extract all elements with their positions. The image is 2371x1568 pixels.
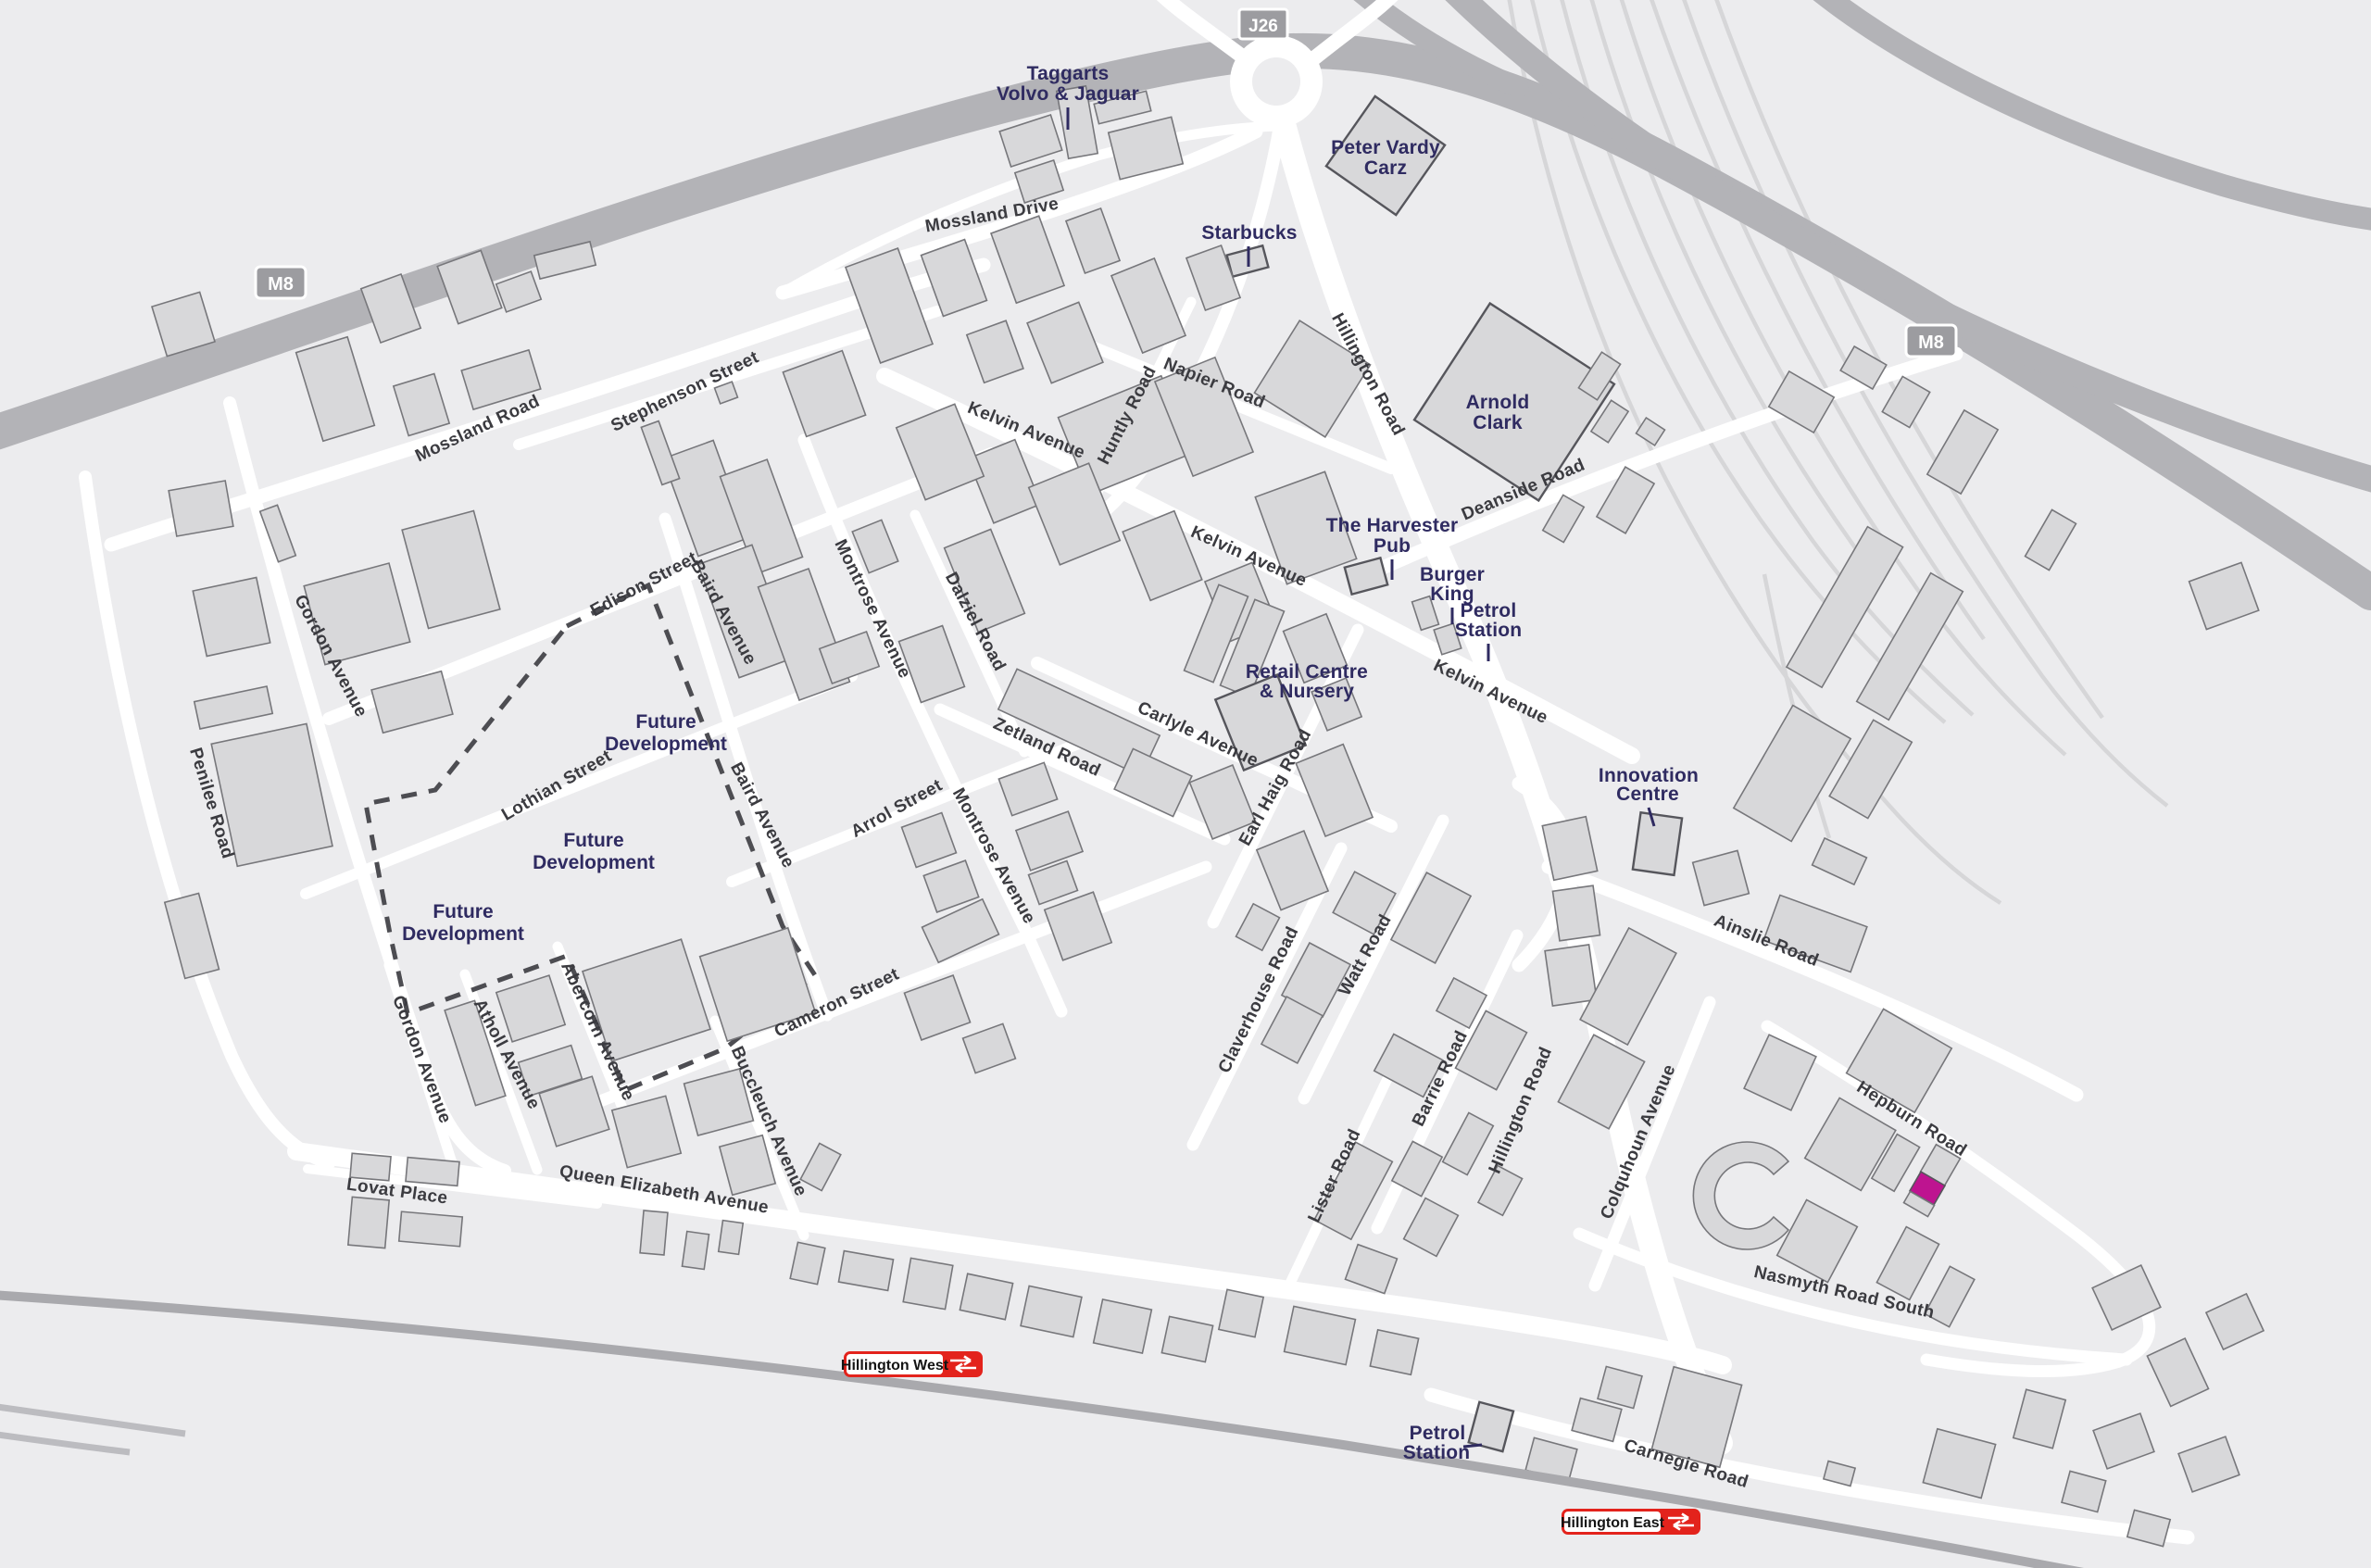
motorway-badge-right: M8 xyxy=(1906,325,1956,357)
area-label: Development xyxy=(533,852,655,873)
innovation-centre-building xyxy=(1633,812,1682,875)
landmark-label-petrol-north: Station xyxy=(1455,620,1523,641)
landmark-label-petrol-south: Petrol xyxy=(1410,1423,1466,1444)
map-canvas[interactable]: Mossland Drive Mossland Road Stephenson … xyxy=(0,0,2371,1568)
landmark-label-harvester: The Harvester xyxy=(1326,515,1459,536)
area-label: Development xyxy=(402,923,524,945)
landmark-label-petrol-north: Petrol xyxy=(1461,600,1517,621)
junction-badge-j26: J26 xyxy=(1239,9,1287,39)
area-label: Future xyxy=(563,830,623,851)
motorway-badge-left: M8 xyxy=(256,267,306,298)
area-label: Development xyxy=(605,734,727,755)
svg-text:M8: M8 xyxy=(1918,332,1944,353)
landmark-label-burger-king: Burger xyxy=(1420,564,1485,585)
station-badge-hillington-west: Hillington West xyxy=(841,1351,983,1377)
landmark-label-arnold-clark: Clark xyxy=(1473,412,1523,433)
area-label: Future xyxy=(635,711,696,733)
landmark-label-arnold-clark: Arnold xyxy=(1466,392,1530,413)
landmark-label-starbucks: Starbucks xyxy=(1201,222,1297,244)
station-name: Hillington West xyxy=(841,1358,949,1374)
landmark-label-taggarts: Volvo & Jaguar xyxy=(997,83,1139,105)
landmark-label-retail-centre: & Nursery xyxy=(1260,681,1354,702)
svg-text:M8: M8 xyxy=(268,274,294,295)
station-name: Hillington East xyxy=(1561,1515,1665,1531)
landmark-label-retail-centre: Retail Centre xyxy=(1246,661,1368,683)
landmark-label-peter-vardy: Carz xyxy=(1364,157,1407,179)
svg-text:J26: J26 xyxy=(1248,17,1278,36)
area-label: Future xyxy=(433,901,493,922)
station-badge-hillington-east: Hillington East xyxy=(1561,1509,1700,1535)
landmark-label-harvester: Pub xyxy=(1374,535,1411,557)
landmark-label-peter-vardy: Peter Vardy xyxy=(1331,137,1440,158)
leader-petrol-south xyxy=(1463,1445,1482,1447)
landmark-label-petrol-south: Station xyxy=(1403,1442,1471,1463)
landmark-label-taggarts: Taggarts xyxy=(1027,63,1110,84)
landmark-label-innovation: Centre xyxy=(1616,784,1679,805)
